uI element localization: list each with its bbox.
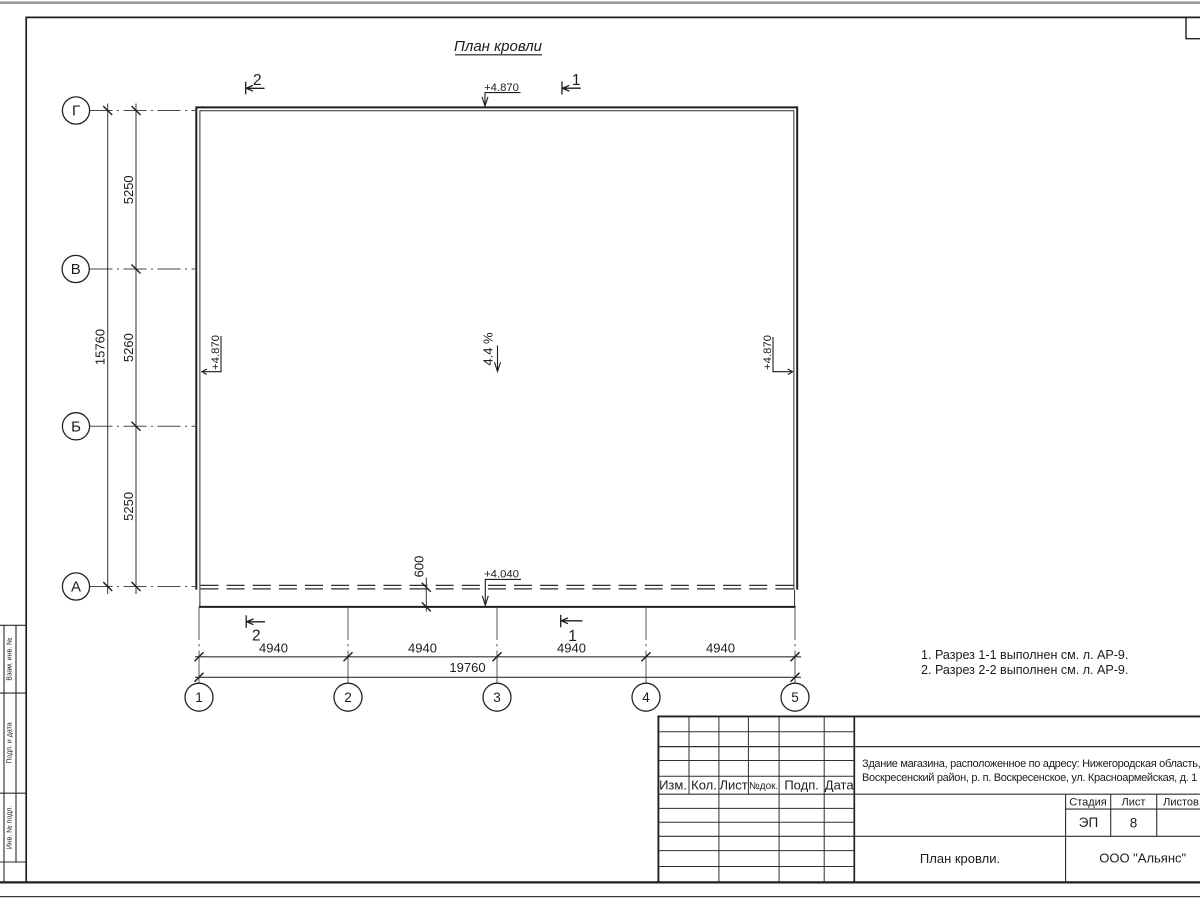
svg-text:Дата: Дата: [825, 778, 855, 793]
svg-text:+4.870: +4.870: [484, 82, 519, 94]
svg-text:+4.040: +4.040: [484, 568, 519, 580]
svg-text:3: 3: [493, 690, 501, 705]
svg-text:Подп.: Подп.: [784, 778, 819, 793]
svg-text:2. Разрез 2-2 выполнен см. л.: 2. Разрез 2-2 выполнен см. л. АР-9.: [921, 663, 1128, 677]
svg-text:2: 2: [344, 690, 352, 705]
svg-text:Б: Б: [71, 418, 81, 435]
svg-text:Взам. инв. №: Взам. инв. №: [7, 637, 14, 680]
svg-text:4: 4: [642, 690, 650, 705]
svg-text:ООО "Альянс": ООО "Альянс": [1099, 850, 1186, 865]
svg-text:4940: 4940: [259, 641, 288, 656]
svg-text:+4.870: +4.870: [210, 335, 222, 370]
svg-text:1: 1: [572, 72, 581, 89]
svg-text:ЭП: ЭП: [1079, 815, 1098, 830]
svg-text:1. Разрез 1-1 выполнен см. л.: 1. Разрез 1-1 выполнен см. л. АР-9.: [921, 648, 1128, 662]
svg-text:5250: 5250: [121, 492, 136, 521]
svg-text:15760: 15760: [93, 329, 108, 365]
svg-text:2: 2: [252, 628, 261, 645]
svg-text:Листов: Листов: [1163, 797, 1199, 809]
svg-text:План кровли.: План кровли.: [920, 851, 1000, 866]
svg-text:Здание магазина, расположенное: Здание магазина, расположенное по адресу…: [862, 758, 1200, 770]
svg-text:4940: 4940: [408, 641, 437, 656]
svg-text:А: А: [71, 579, 81, 596]
svg-text:+4.870: +4.870: [762, 335, 774, 370]
svg-text:Кол.: Кол.: [691, 778, 717, 793]
svg-text:Лист: Лист: [1122, 797, 1146, 809]
svg-text:5260: 5260: [121, 333, 136, 362]
svg-text:4.4 %: 4.4 %: [480, 332, 495, 366]
svg-text:Инв. № подл.: Инв. № подл.: [7, 806, 14, 850]
svg-text:Воскресенский район, р. п. Вос: Воскресенский район, р. п. Воскресенское…: [862, 772, 1197, 784]
svg-text:Подп. и дата: Подп. и дата: [7, 722, 14, 763]
svg-text:8: 8: [1130, 816, 1138, 831]
svg-text:План кровли: План кровли: [454, 38, 543, 55]
svg-text:Лист: Лист: [719, 778, 747, 793]
svg-text:600: 600: [411, 556, 426, 578]
svg-text:Г: Г: [72, 103, 80, 120]
svg-text:1: 1: [195, 690, 203, 705]
svg-text:Изм.: Изм.: [659, 778, 687, 793]
svg-text:Стадия: Стадия: [1069, 797, 1107, 809]
svg-text:5250: 5250: [121, 175, 136, 204]
svg-text:5: 5: [791, 690, 799, 705]
svg-text:2: 2: [253, 72, 262, 89]
svg-text:4940: 4940: [706, 641, 735, 656]
svg-text:19760: 19760: [449, 660, 485, 675]
svg-text:1: 1: [568, 628, 577, 645]
svg-text:В: В: [71, 261, 81, 278]
svg-text:№док.: №док.: [749, 781, 778, 792]
